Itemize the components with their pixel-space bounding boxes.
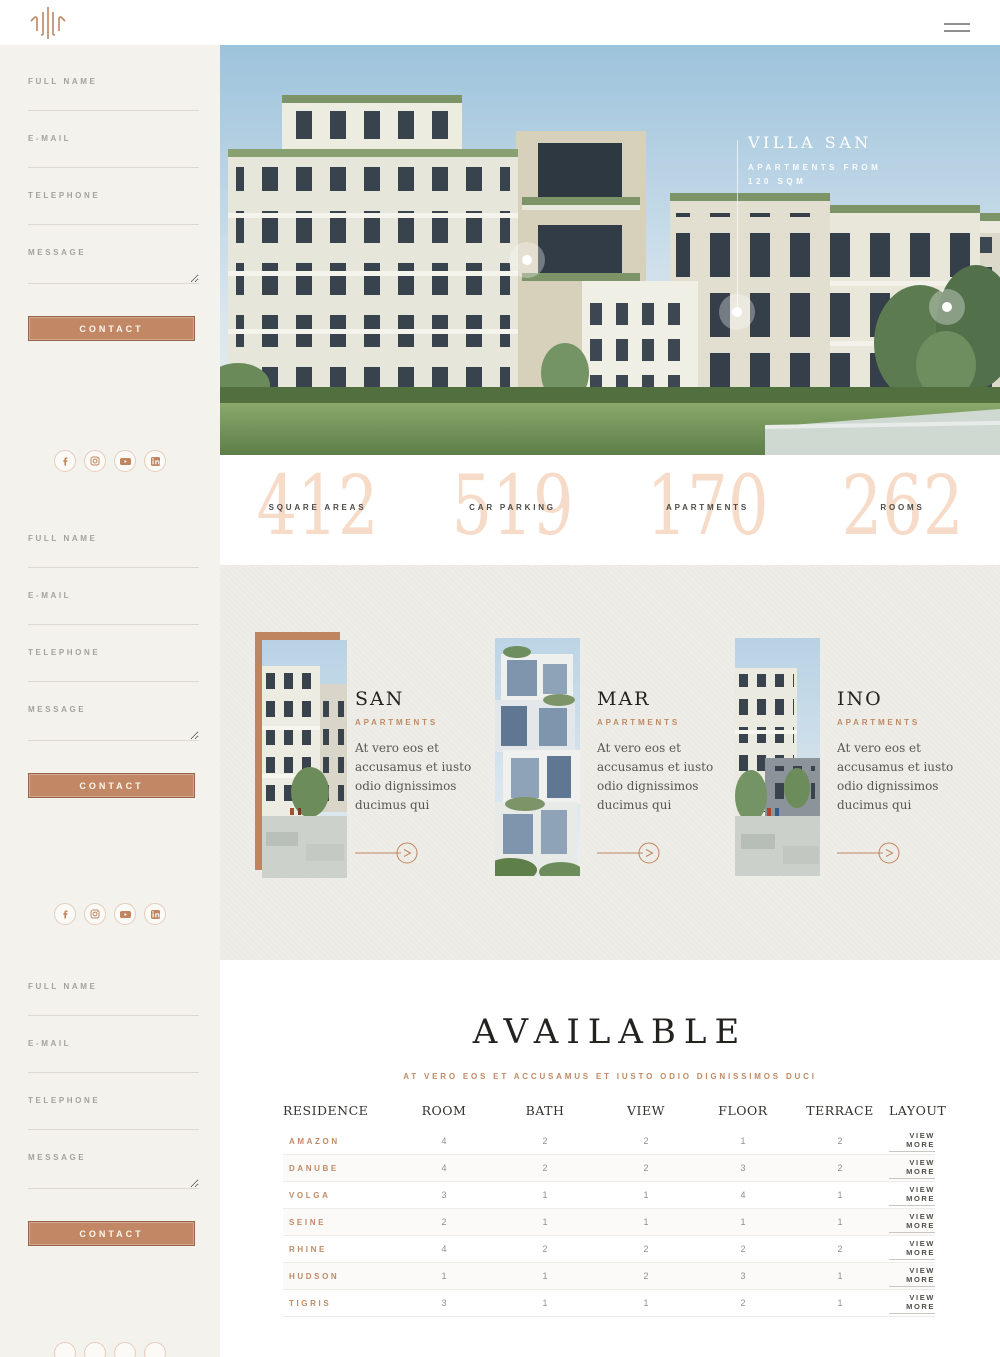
table-row-seine: SEINE 2 1 1 1 1 VIEW MORE [283, 1209, 935, 1236]
stat-label: ROOMS [805, 503, 1000, 512]
full-name-field: FULL NAME [28, 77, 195, 111]
telephone-input[interactable] [28, 661, 199, 682]
room-value: 1 [395, 1271, 493, 1281]
social-links-1 [0, 450, 220, 472]
table-row-tigris: TIGRIS 3 1 1 2 1 VIEW MORE [283, 1290, 935, 1317]
residence-name: RHINE [283, 1245, 395, 1254]
hotspot-marker[interactable] [509, 242, 545, 278]
linkedin-icon[interactable] [144, 1342, 166, 1357]
contact-form-3: FULL NAME E-MAIL TELEPHONE MESSAGE CONTA… [28, 982, 195, 1246]
floor-value: 2 [695, 1298, 791, 1308]
view-value: 2 [597, 1271, 695, 1281]
telephone-input[interactable] [28, 204, 199, 225]
card-arrow-link[interactable] [597, 841, 661, 870]
card-text: INO APARTMENTS At vero eos et accusamus … [837, 688, 959, 870]
instagram-icon[interactable] [84, 1342, 106, 1357]
terrace-value: 2 [791, 1136, 889, 1146]
arrow-icon [597, 841, 661, 865]
stat-car-parking: 519 CAR PARKING [415, 455, 610, 565]
stat-label: CAR PARKING [415, 503, 610, 512]
floor-value: 2 [695, 1244, 791, 1254]
card-san: SAN APARTMENTS At vero eos et accusamus … [220, 565, 480, 960]
view-more-link[interactable]: VIEW MORE [889, 1293, 935, 1314]
sidebar: FULL NAME E-MAIL TELEPHONE MESSAGE CONTA… [0, 45, 220, 1357]
terrace-value: 2 [791, 1244, 889, 1254]
card-title: INO [837, 688, 959, 710]
message-input[interactable] [28, 261, 199, 284]
bath-value: 1 [493, 1271, 597, 1281]
card-text: SAN APARTMENTS At vero eos et accusamus … [355, 688, 477, 870]
table-row-amazon: AMAZON 4 2 2 1 2 VIEW MORE [283, 1128, 935, 1155]
linkedin-icon[interactable] [144, 450, 166, 472]
hero-image: VILLA SAN APARTMENTS FROM 120 SQM [220, 45, 1000, 455]
telephone-field: TELEPHONE [28, 648, 195, 682]
telephone-field: TELEPHONE [28, 1096, 195, 1130]
card-mar: MAR APARTMENTS At vero eos et accusamus … [460, 565, 720, 960]
message-input[interactable] [28, 718, 199, 741]
card-description: At vero eos et accusamus et iusto odio d… [837, 739, 959, 815]
view-more-link[interactable]: VIEW MORE [889, 1212, 935, 1233]
message-field: MESSAGE [28, 1153, 195, 1189]
terrace-value: 1 [791, 1298, 889, 1308]
room-value: 2 [395, 1217, 493, 1227]
table-row-volga: VOLGA 3 1 1 4 1 VIEW MORE [283, 1182, 935, 1209]
column-terrace: TERRACE [791, 1103, 889, 1118]
card-ino: INO APARTMENTS At vero eos et accusamus … [700, 565, 1000, 960]
floor-value: 3 [695, 1163, 791, 1173]
email-input[interactable] [28, 1052, 199, 1073]
email-input[interactable] [28, 147, 199, 168]
table-row-rhine: RHINE 4 2 2 2 2 VIEW MORE [283, 1236, 935, 1263]
column-view: VIEW [597, 1103, 695, 1118]
view-value: 1 [597, 1217, 695, 1227]
available-title: AVAILABLE [220, 1012, 1000, 1052]
youtube-icon[interactable] [114, 903, 136, 925]
full-name-label: FULL NAME [28, 77, 195, 86]
room-value: 4 [395, 1163, 493, 1173]
card-tag: APARTMENTS [837, 718, 959, 727]
facebook-icon[interactable] [54, 450, 76, 472]
view-value: 2 [597, 1163, 695, 1173]
social-links-3 [0, 1342, 220, 1357]
view-value: 1 [597, 1190, 695, 1200]
column-residence: RESIDENCE [283, 1103, 395, 1118]
stat-square-areas: 412 SQUARE AREAS [220, 455, 415, 565]
view-more-link[interactable]: VIEW MORE [889, 1158, 935, 1179]
card-description: At vero eos et accusamus et iusto odio d… [355, 739, 477, 815]
column-bath: BATH [493, 1103, 597, 1118]
youtube-icon[interactable] [114, 1342, 136, 1357]
arrow-icon [837, 841, 901, 865]
card-arrow-link[interactable] [355, 841, 419, 870]
email-field: E-MAIL [28, 134, 195, 168]
facebook-icon[interactable] [54, 1342, 76, 1357]
room-value: 3 [395, 1190, 493, 1200]
view-more-link[interactable]: VIEW MORE [889, 1185, 935, 1206]
full-name-label: FULL NAME [28, 982, 195, 991]
hero-pointer-line [737, 140, 738, 312]
bath-value: 1 [493, 1298, 597, 1308]
residence-name: SEINE [283, 1218, 395, 1227]
table-row-hudson: HUDSON 1 1 2 3 1 VIEW MORE [283, 1263, 935, 1290]
telephone-label: TELEPHONE [28, 1096, 195, 1105]
full-name-field: FULL NAME [28, 982, 195, 1016]
stat-label: APARTMENTS [610, 503, 805, 512]
email-label: E-MAIL [28, 591, 195, 600]
email-label: E-MAIL [28, 134, 195, 143]
email-field: E-MAIL [28, 1039, 195, 1073]
stats-strip: 412 SQUARE AREAS 519 CAR PARKING 170 APA… [220, 455, 1000, 565]
view-more-link[interactable]: VIEW MORE [889, 1131, 935, 1152]
available-section: AVAILABLE AT VERO EOS ET ACCUSAMUS ET IU… [220, 960, 1000, 1357]
full-name-field: FULL NAME [28, 534, 195, 568]
room-value: 4 [395, 1244, 493, 1254]
message-label: MESSAGE [28, 705, 195, 714]
page: FULL NAME E-MAIL TELEPHONE MESSAGE CONTA… [0, 0, 1000, 1357]
card-image[interactable] [495, 638, 580, 876]
email-field: E-MAIL [28, 591, 195, 625]
message-label: MESSAGE [28, 1153, 195, 1162]
view-value: 2 [597, 1136, 695, 1146]
column-floor: FLOOR [695, 1103, 791, 1118]
bath-value: 1 [493, 1190, 597, 1200]
youtube-icon[interactable] [114, 450, 136, 472]
view-value: 2 [597, 1244, 695, 1254]
arrow-icon [355, 841, 419, 865]
terrace-value: 2 [791, 1163, 889, 1173]
telephone-label: TELEPHONE [28, 191, 195, 200]
email-input[interactable] [28, 604, 199, 625]
social-links-2 [0, 903, 220, 925]
card-tag: APARTMENTS [355, 718, 477, 727]
column-layout: LAYOUT [889, 1103, 946, 1118]
instagram-icon[interactable] [84, 903, 106, 925]
bath-value: 2 [493, 1244, 597, 1254]
room-value: 4 [395, 1136, 493, 1146]
stat-apartments: 170 APARTMENTS [610, 455, 805, 565]
message-label: MESSAGE [28, 248, 195, 257]
hero-subtitle: APARTMENTS FROM 120 SQM [748, 161, 881, 189]
message-input[interactable] [28, 1166, 199, 1189]
floor-value: 1 [695, 1136, 791, 1146]
email-label: E-MAIL [28, 1039, 195, 1048]
contact-button[interactable]: CONTACT [28, 773, 195, 798]
telephone-input[interactable] [28, 1109, 199, 1130]
residence-name: HUDSON [283, 1272, 395, 1281]
terrace-value: 1 [791, 1271, 889, 1281]
telephone-field: TELEPHONE [28, 191, 195, 225]
floor-value: 4 [695, 1190, 791, 1200]
floor-value: 3 [695, 1271, 791, 1281]
contact-button[interactable]: CONTACT [28, 1221, 195, 1246]
stat-rooms: 262 ROOMS [805, 455, 1000, 565]
residence-name: AMAZON [283, 1137, 395, 1146]
full-name-input[interactable] [28, 547, 199, 568]
residence-name: VOLGA [283, 1191, 395, 1200]
main-content: VILLA SAN APARTMENTS FROM 120 SQM 412 SQ… [220, 45, 1000, 1357]
message-field: MESSAGE [28, 248, 195, 284]
top-bar [0, 0, 1000, 45]
residences-table: RESIDENCE ROOM BATH VIEW FLOOR TERRACE L… [283, 1098, 935, 1317]
card-image[interactable] [262, 640, 347, 878]
villa-logo-icon[interactable] [20, 4, 76, 42]
card-image[interactable] [735, 638, 820, 876]
room-value: 3 [395, 1298, 493, 1308]
hero-label: VILLA SAN APARTMENTS FROM 120 SQM [748, 133, 881, 189]
bath-value: 2 [493, 1163, 597, 1173]
hero-title: VILLA SAN [748, 133, 881, 152]
available-subtitle: AT VERO EOS ET ACCUSAMUS ET IUSTO ODIO D… [220, 1072, 1000, 1081]
terrace-value: 1 [791, 1217, 889, 1227]
stat-label: SQUARE AREAS [220, 503, 415, 512]
linkedin-icon[interactable] [144, 903, 166, 925]
residence-name: DANUBE [283, 1164, 395, 1173]
floor-value: 1 [695, 1217, 791, 1227]
bath-value: 1 [493, 1217, 597, 1227]
table-header-row: RESIDENCE ROOM BATH VIEW FLOOR TERRACE L… [283, 1098, 935, 1122]
full-name-label: FULL NAME [28, 534, 195, 543]
hamburger-icon[interactable] [944, 23, 970, 35]
card-title: SAN [355, 688, 477, 710]
view-more-link[interactable]: VIEW MORE [889, 1266, 935, 1287]
view-more-link[interactable]: VIEW MORE [889, 1239, 935, 1260]
hotspot-marker[interactable] [719, 294, 755, 330]
apartment-cards-section: SAN APARTMENTS At vero eos et accusamus … [220, 565, 1000, 960]
message-field: MESSAGE [28, 705, 195, 741]
instagram-icon[interactable] [84, 450, 106, 472]
hotspot-marker[interactable] [929, 289, 965, 325]
full-name-input[interactable] [28, 995, 199, 1016]
facebook-icon[interactable] [54, 903, 76, 925]
contact-form-1: FULL NAME E-MAIL TELEPHONE MESSAGE CONTA… [28, 77, 195, 341]
column-room: ROOM [395, 1103, 493, 1118]
card-arrow-link[interactable] [837, 841, 901, 870]
contact-button[interactable]: CONTACT [28, 316, 195, 341]
view-value: 1 [597, 1298, 695, 1308]
residence-name: TIGRIS [283, 1299, 395, 1308]
telephone-label: TELEPHONE [28, 648, 195, 657]
bath-value: 2 [493, 1136, 597, 1146]
terrace-value: 1 [791, 1190, 889, 1200]
contact-form-2: FULL NAME E-MAIL TELEPHONE MESSAGE CONTA… [28, 534, 195, 798]
full-name-input[interactable] [28, 90, 199, 111]
table-row-danube: DANUBE 4 2 2 3 2 VIEW MORE [283, 1155, 935, 1182]
